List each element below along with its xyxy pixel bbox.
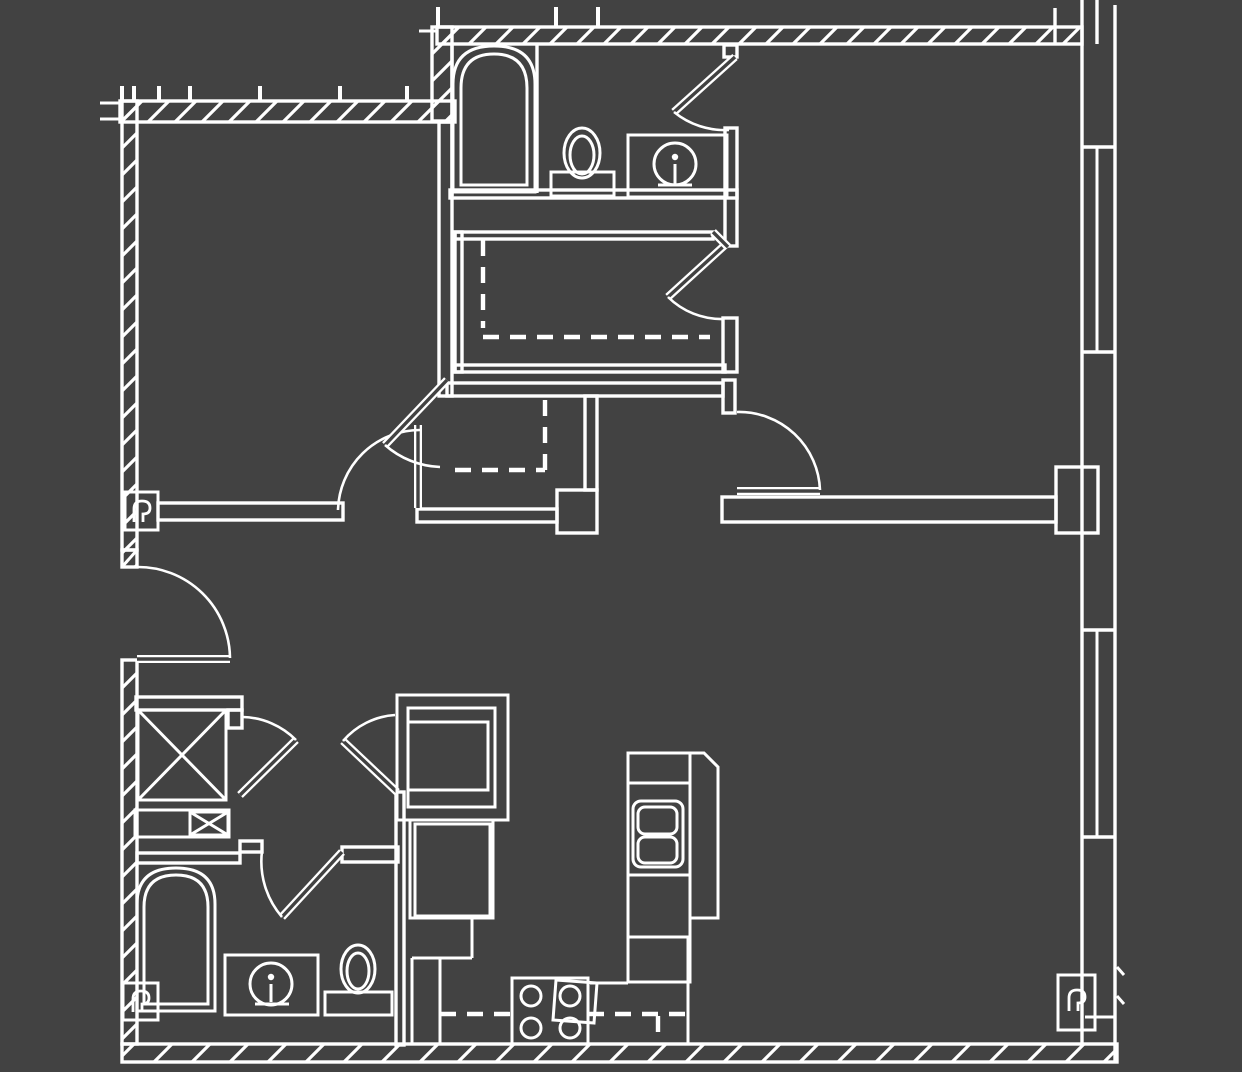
wall-break-tick xyxy=(1117,967,1124,975)
bed2-door-stub xyxy=(723,380,735,413)
exterior-walls xyxy=(100,0,1124,1062)
bath1-door xyxy=(674,57,735,130)
bath2-north-wall-west xyxy=(137,853,240,863)
bath2-door xyxy=(261,851,342,917)
entry-door xyxy=(122,550,230,659)
bed2-door xyxy=(737,412,820,491)
bathroom-bottom-fixtures xyxy=(137,868,392,1015)
laundry-north-wall xyxy=(136,697,242,710)
laundry-door-stub xyxy=(228,710,242,728)
laundry-shelf xyxy=(135,810,229,837)
column-markers xyxy=(123,492,1095,1030)
bath2-kitchen-wall xyxy=(396,792,404,1045)
right-wall-pier xyxy=(1056,467,1098,533)
top-wall-left-section xyxy=(120,101,455,122)
closet1-south-wall xyxy=(455,365,725,372)
kitchen-double-sink-icon xyxy=(633,801,683,867)
laundry-closet xyxy=(135,710,229,837)
closet1-west-wall xyxy=(455,232,462,372)
kitchen xyxy=(397,695,718,1044)
toilet-tank xyxy=(325,992,392,1015)
hallcloset-south-wall xyxy=(417,509,557,522)
hallcloset-east-wall xyxy=(585,396,597,490)
top-wall-connector xyxy=(432,27,452,121)
toilet-tank xyxy=(551,172,614,196)
closet1-door xyxy=(668,232,728,319)
base-cabinet xyxy=(410,820,493,918)
counter-return xyxy=(690,753,718,918)
refrigerator-icon xyxy=(397,695,508,820)
interior-walls xyxy=(136,44,1056,1045)
bath2-door-jamb xyxy=(240,841,262,852)
bath1-door-jamb xyxy=(724,45,737,57)
pantry-door xyxy=(343,715,397,792)
range-four-burner-icon xyxy=(512,978,597,1044)
bed1-east-wall xyxy=(439,122,452,396)
bath2-north-wall-east xyxy=(342,847,398,862)
closet1-north-wall xyxy=(455,232,713,239)
laundry-door xyxy=(240,717,296,795)
hall-north-wall xyxy=(447,383,723,396)
hallcloset-column xyxy=(557,490,597,533)
wall-break-tick xyxy=(1117,996,1124,1004)
floor-plan-canvas xyxy=(0,0,1242,1072)
bed2-south-wall xyxy=(722,497,1056,522)
bed1-door xyxy=(338,425,420,510)
closet-rod-dashes xyxy=(455,240,710,470)
column-marker-right-bottom xyxy=(1058,975,1095,1030)
bottom-wall xyxy=(122,1044,1117,1062)
right-curtain-wall xyxy=(1055,0,1124,1062)
top-wall-right-section xyxy=(437,27,1082,44)
left-wall-upper xyxy=(122,101,137,550)
hall-south-wall xyxy=(158,503,343,520)
